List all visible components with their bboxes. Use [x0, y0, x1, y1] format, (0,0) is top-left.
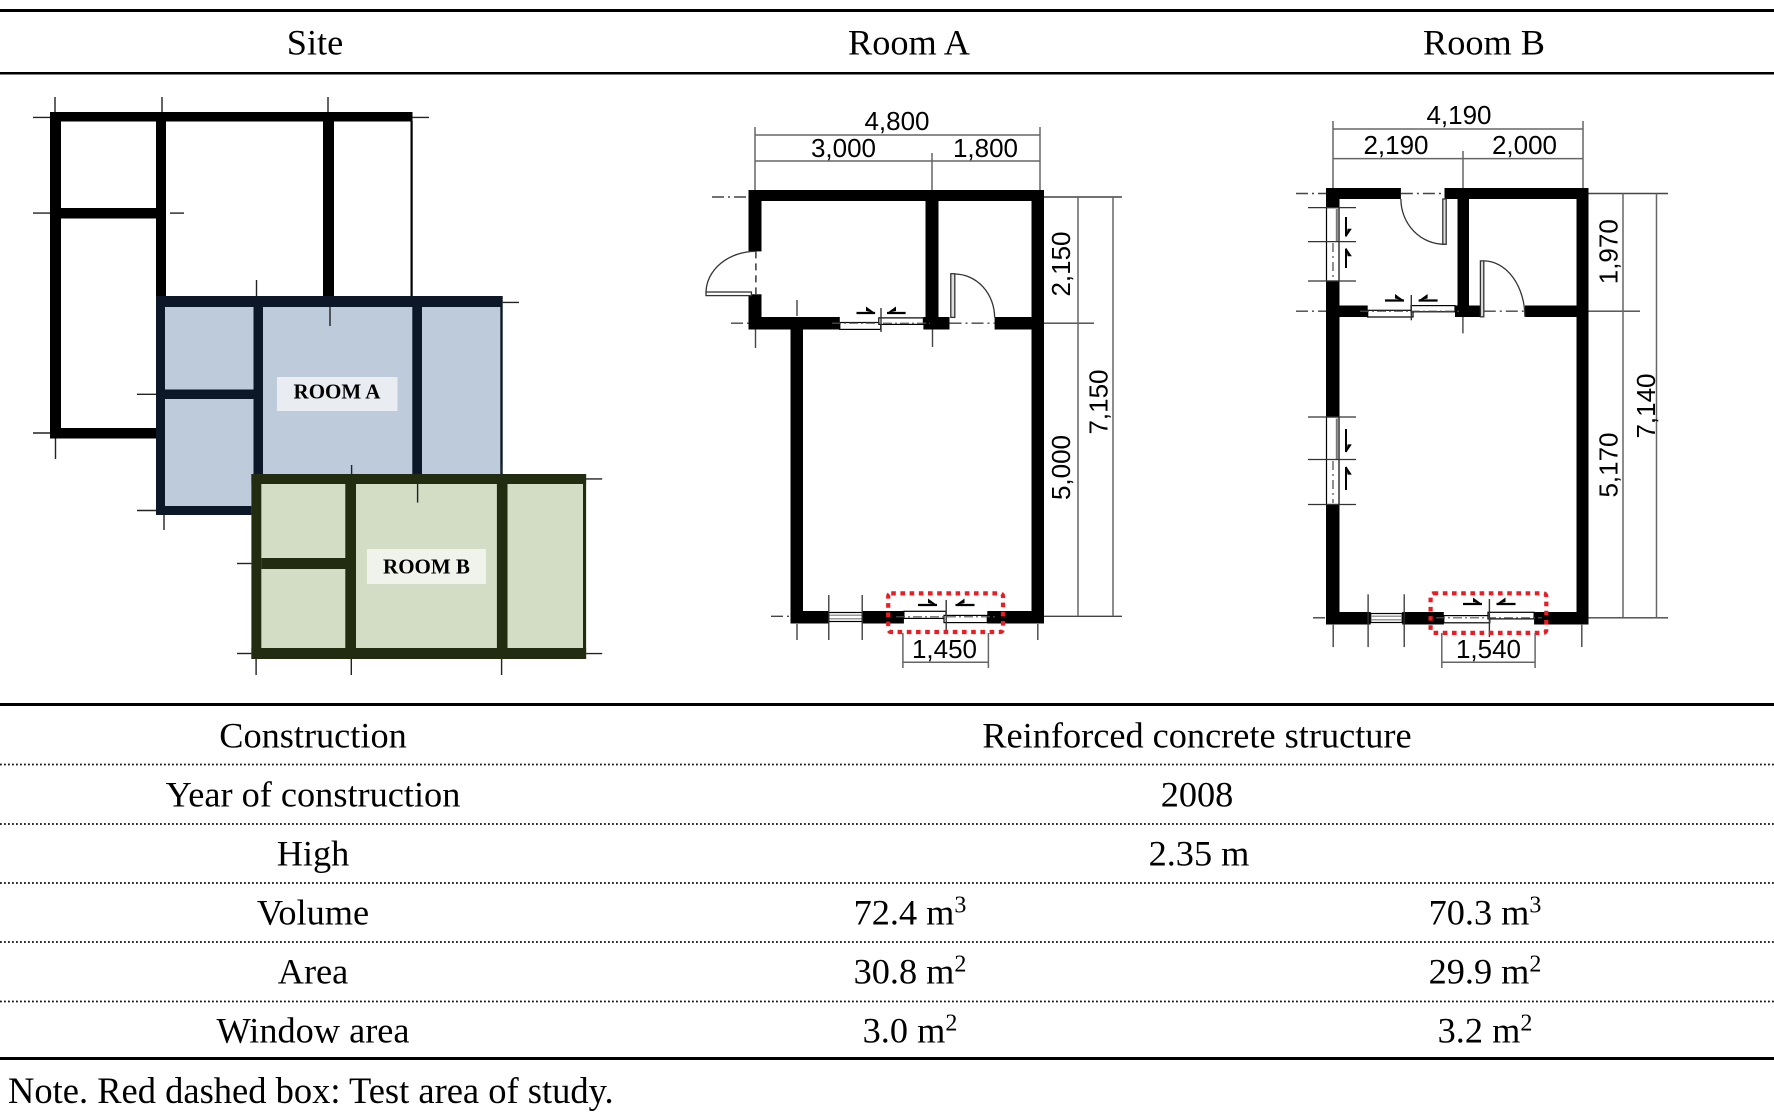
svg-text:3,000: 3,000 [811, 133, 876, 163]
svg-text:72.4 m3: 72.4 m3 [854, 893, 967, 933]
svg-text:2,190: 2,190 [1363, 130, 1428, 160]
svg-text:Construction: Construction [219, 716, 407, 756]
svg-text:1,540: 1,540 [1456, 634, 1521, 664]
svg-text:29.9 m2: 29.9 m2 [1429, 952, 1542, 992]
svg-text:Note. Red dashed box: Test are: Note. Red dashed box: Test area of study… [8, 1070, 614, 1111]
svg-text:30.8 m2: 30.8 m2 [854, 952, 967, 992]
svg-text:Area: Area [278, 952, 349, 992]
svg-text:4,800: 4,800 [864, 106, 929, 136]
svg-text:5,000: 5,000 [1046, 435, 1076, 500]
svg-text:3.0 m2: 3.0 m2 [863, 1011, 958, 1051]
svg-text:1,970: 1,970 [1594, 219, 1624, 284]
svg-text:Window area: Window area [216, 1011, 409, 1051]
svg-text:7,150: 7,150 [1084, 369, 1114, 434]
svg-text:1,450: 1,450 [912, 634, 977, 664]
svg-text:70.3 m3: 70.3 m3 [1429, 893, 1542, 933]
svg-text:Room B: Room B [1423, 23, 1545, 63]
svg-text:2,000: 2,000 [1492, 130, 1557, 160]
svg-text:4,190: 4,190 [1426, 100, 1491, 130]
svg-text:ROOM B: ROOM B [383, 555, 470, 579]
svg-text:7,140: 7,140 [1631, 373, 1661, 438]
svg-text:ROOM A: ROOM A [294, 380, 382, 404]
svg-text:Room A: Room A [848, 23, 970, 63]
svg-text:Site: Site [287, 23, 343, 63]
svg-text:2,150: 2,150 [1046, 231, 1076, 296]
svg-text:3.2 m2: 3.2 m2 [1438, 1011, 1533, 1051]
svg-text:High: High [277, 834, 350, 874]
svg-text:1,800: 1,800 [953, 133, 1018, 163]
svg-text:2008: 2008 [1161, 775, 1234, 815]
svg-text:2.35 m: 2.35 m [1149, 834, 1250, 874]
svg-text:Year of construction: Year of construction [166, 775, 461, 815]
svg-text:Reinforced concrete structure: Reinforced concrete structure [982, 716, 1411, 756]
svg-text:5,170: 5,170 [1594, 432, 1624, 497]
svg-text:Volume: Volume [257, 893, 369, 933]
